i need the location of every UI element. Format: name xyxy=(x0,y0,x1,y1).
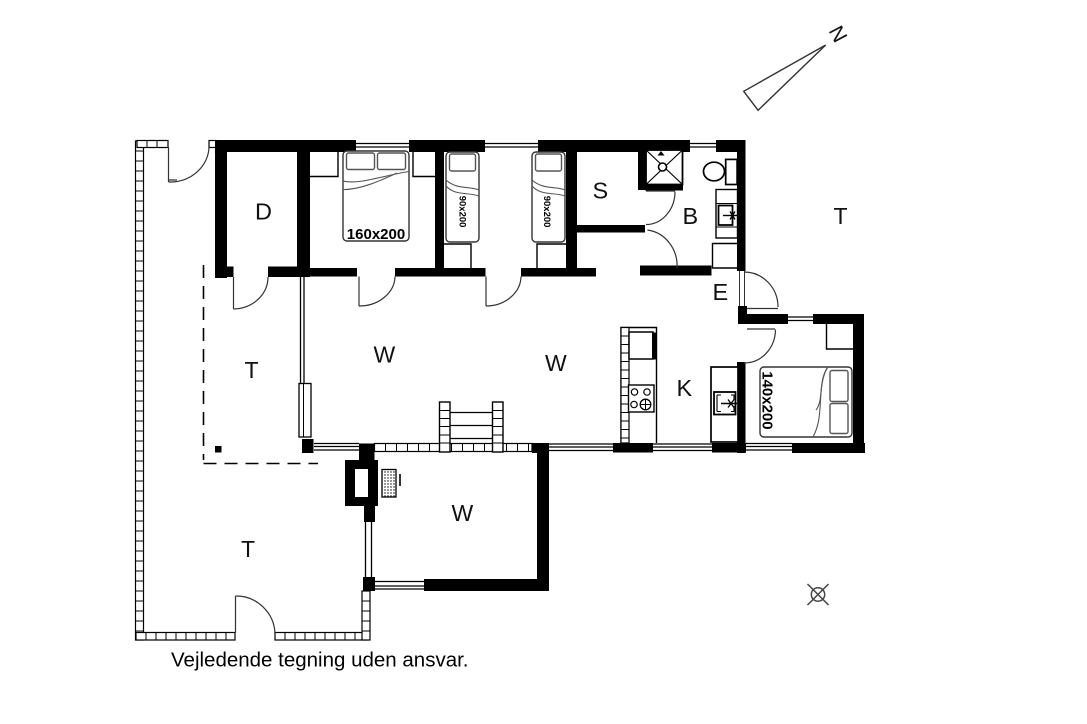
svg-text:90x200: 90x200 xyxy=(457,196,468,228)
svg-text:W: W xyxy=(452,500,474,526)
svg-text:T: T xyxy=(245,357,259,383)
svg-text:S: S xyxy=(593,178,609,204)
svg-text:160x200: 160x200 xyxy=(347,226,405,243)
svg-text:B: B xyxy=(683,203,699,229)
svg-text:T: T xyxy=(834,203,848,229)
svg-text:D: D xyxy=(255,199,272,225)
svg-text:W: W xyxy=(374,342,396,368)
svg-text:90x200: 90x200 xyxy=(541,196,552,228)
svg-text:Vejledende tegning uden ansvar: Vejledende tegning uden ansvar. xyxy=(171,649,469,672)
svg-text:K: K xyxy=(677,375,693,401)
svg-text:E: E xyxy=(713,279,729,305)
svg-text:140x200: 140x200 xyxy=(759,371,776,429)
svg-text:W: W xyxy=(545,350,567,376)
svg-text:T: T xyxy=(241,536,255,562)
